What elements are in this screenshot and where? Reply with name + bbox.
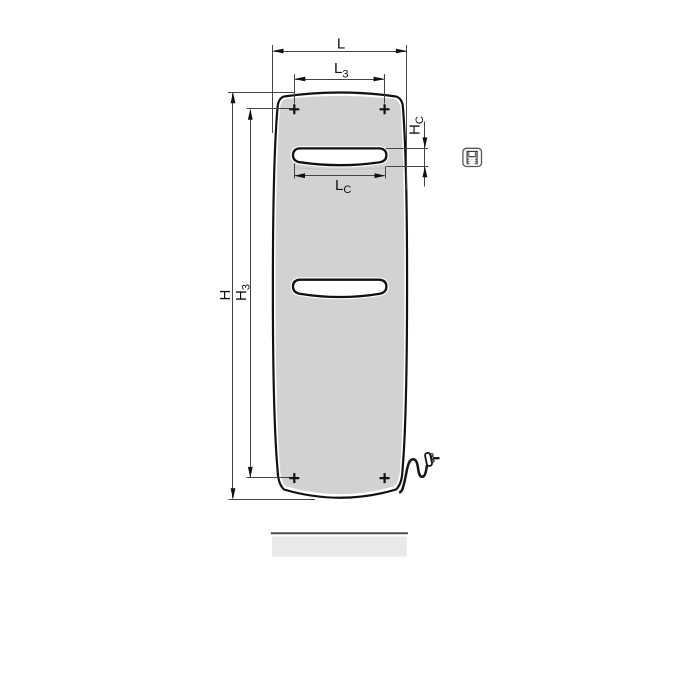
svg-text:H: H (217, 290, 234, 301)
svg-text:L: L (337, 36, 345, 53)
